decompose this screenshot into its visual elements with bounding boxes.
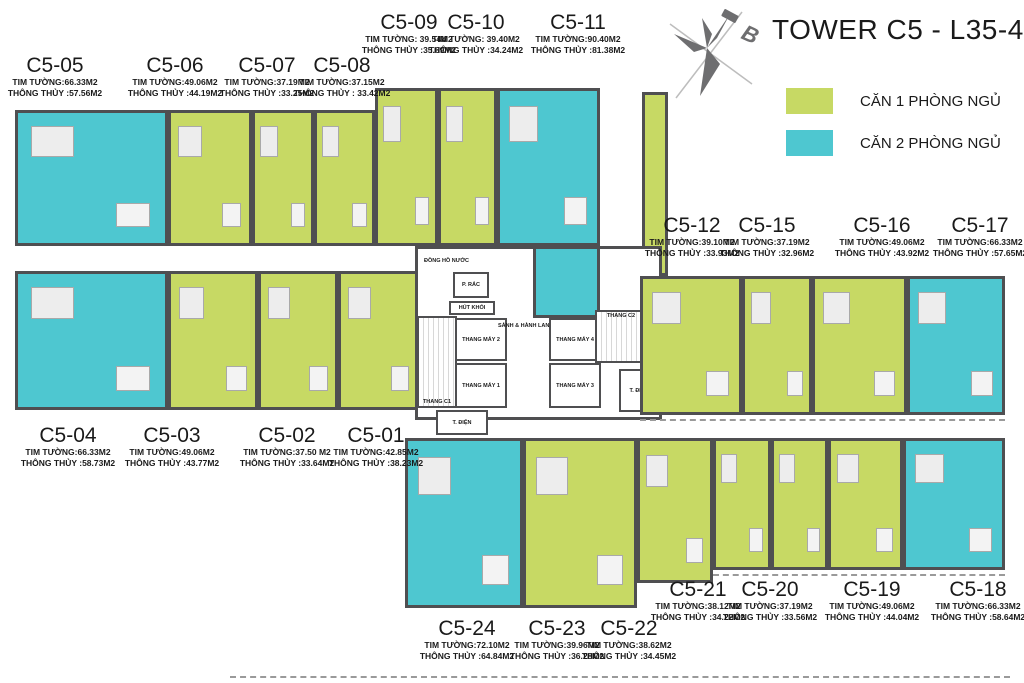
unit-region-c5-07 — [252, 110, 314, 246]
unit-area-tim: TIM TƯỜNG:37.15M2 — [282, 77, 402, 88]
unit-region-c5-17 — [907, 276, 1005, 415]
unit-id: C5-08 — [282, 54, 402, 77]
legend-swatch-1br — [786, 88, 833, 114]
unit-region-c5-20 — [771, 438, 828, 570]
unit-area-thong: THÔNG THỦY :43.77M2 — [112, 458, 232, 469]
unit-area-tim: TIM TƯỜNG:66.33M2 — [8, 447, 128, 458]
unit-region-c5-02 — [258, 271, 338, 410]
unit-area-thong: THÔNG THỦY :81.38M2 — [518, 45, 638, 56]
floor-plan-canvas: B TOWER C5 - L35-44 CĂN 1 PHÒNG NGỦ CĂN … — [0, 0, 1024, 683]
unit-area-tim: TIM TƯỜNG:66.33M2 — [920, 237, 1024, 248]
unit-region-c5-23 — [523, 438, 637, 608]
unit-label-c5-08: C5-08 TIM TƯỜNG:37.15M2 THÔNG THỦY : 33.… — [282, 54, 402, 99]
unit-label-c5-11: C5-11 TIM TƯỜNG:90.40M2 THÔNG THỦY :81.3… — [518, 11, 638, 56]
unit-area-tim: TIM TƯỜNG:49.06M2 — [812, 601, 932, 612]
dashed-line-right-wing — [640, 419, 1005, 421]
unit-label-c5-18: C5-18 TIM TƯỜNG:66.33M2 THÔNG THỦY :58.6… — [928, 578, 1024, 623]
page-title: TOWER C5 - L35-44 — [772, 14, 1024, 46]
unit-label-c5-04: C5-04 TIM TƯỜNG:66.33M2 THÔNG THỦY :58.7… — [8, 424, 128, 469]
unit-region-c5-12 — [640, 276, 742, 415]
unit-id: C5-11 — [518, 11, 638, 34]
unit-area-tim: TIM TƯỜNG:37.19M2 — [707, 237, 827, 248]
unit-region-c5-18 — [903, 438, 1005, 570]
core-water-meter-label: ĐỒNG HỒ NƯỚC — [424, 258, 469, 264]
core-lobby-label: SẢNH & HÀNH LANG — [498, 323, 554, 329]
unit-label-c5-15: C5-15 TIM TƯỜNG:37.19M2 THÔNG THỦY :32.9… — [707, 214, 827, 259]
unit-area-thong: THÔNG THỦY :58.64M2 — [928, 612, 1024, 623]
unit-region-c5-16 — [812, 276, 907, 415]
unit-id: C5-01 — [316, 424, 436, 447]
unit-label-c5-01: C5-01 TIM TƯỜNG:42.85M2 THÔNG THỦY :38.2… — [316, 424, 436, 469]
unit-area-thong: THÔNG THỦY :57.56M2 — [0, 88, 115, 99]
unit-id: C5-03 — [112, 424, 232, 447]
unit-id: C5-15 — [707, 214, 827, 237]
unit-region-c5-15 — [742, 276, 812, 415]
legend-label-1br: CĂN 1 PHÒNG NGỦ — [860, 93, 1001, 110]
unit-id: C5-05 — [0, 54, 115, 77]
unit-label-c5-17: C5-17 TIM TƯỜNG:66.33M2 THÔNG THỦY :57.6… — [920, 214, 1024, 259]
unit-area-thong: THÔNG THỦY :44.04M2 — [812, 612, 932, 623]
unit-area-thong: THÔNG THỦY : 33.42M2 — [282, 88, 402, 99]
dashed-line-bottom — [230, 676, 1010, 678]
unit-area-tim: TIM TƯỜNG:90.40M2 — [518, 34, 638, 45]
unit-id: C5-17 — [920, 214, 1024, 237]
unit-region-c5-08 — [314, 110, 375, 246]
unit-area-tim: TIM TƯỜNG:66.33M2 — [928, 601, 1024, 612]
unit-area-thong: THÔNG THỦY :34.45M2 — [569, 651, 689, 662]
unit-label-c5-19: C5-19 TIM TƯỜNG:49.06M2 THÔNG THỦY :44.0… — [812, 578, 932, 623]
unit-region-c5-03 — [168, 271, 258, 410]
unit-area-thong: THÔNG THỦY :58.73M2 — [8, 458, 128, 469]
legend-swatch-2br — [786, 130, 833, 156]
dashed-line-bottom-right — [713, 574, 1005, 576]
unit-label-c5-05: C5-05 TIM TƯỜNG:66.33M2 THÔNG THỦY :57.5… — [0, 54, 115, 99]
north-arrow-icon: B — [662, 4, 762, 108]
unit-region-c5-06 — [168, 110, 252, 246]
unit-region-c5-04 — [15, 271, 168, 410]
legend-label-2br: CĂN 2 PHÒNG NGỦ — [860, 135, 1001, 152]
unit-region-c5-01 — [338, 271, 420, 410]
unit-area-tim: TIM TƯỜNG:38.62M2 — [569, 640, 689, 651]
unit-area-thong: THÔNG THỦY :32.96M2 — [707, 248, 827, 259]
core-elevator-3: THANG MÁY 3 — [549, 363, 601, 408]
core-elevator-1: THANG MÁY 1 — [455, 363, 507, 408]
unit-area-tim: TIM TƯỜNG:42.85M2 — [316, 447, 436, 458]
unit-id: C5-19 — [812, 578, 932, 601]
unit-area-thong: THÔNG THỦY :57.65M2 — [920, 248, 1024, 259]
unit-region-c5-10 — [438, 88, 497, 246]
unit-region-c5-11 — [497, 88, 600, 246]
unit-region-c5-05 — [15, 110, 168, 246]
compass-north-letter: B — [738, 20, 762, 49]
core-stair-c1: THANG C1 — [417, 316, 457, 408]
unit-label-c5-22: C5-22 TIM TƯỜNG:38.62M2 THÔNG THỦY :34.4… — [569, 617, 689, 662]
core-trash-room: P. RÁC — [453, 272, 489, 298]
unit-area-tim: TIM TƯỜNG:66.33M2 — [0, 77, 115, 88]
unit-label-c5-03: C5-03 TIM TƯỜNG:49.06M2 THÔNG THỦY :43.7… — [112, 424, 232, 469]
unit-region-c5-21 — [713, 438, 771, 570]
unit-area-tim: TIM TƯỜNG:49.06M2 — [112, 447, 232, 458]
core-smoke-extract: HÚT KHÓI — [449, 301, 495, 315]
core-elevator-4: THANG MÁY 4 — [549, 318, 601, 361]
unit-id: C5-04 — [8, 424, 128, 447]
unit-area-thong: THÔNG THỦY :38.23M2 — [316, 458, 436, 469]
unit-region-c5-19 — [828, 438, 903, 570]
unit-region-c5-09 — [375, 88, 438, 246]
unit-region-c5-22 — [637, 438, 713, 583]
core-electrical-room-bottom: T. ĐIỆN — [436, 410, 488, 435]
unit-id: C5-18 — [928, 578, 1024, 601]
unit-region-c5-11-lower — [533, 246, 600, 318]
